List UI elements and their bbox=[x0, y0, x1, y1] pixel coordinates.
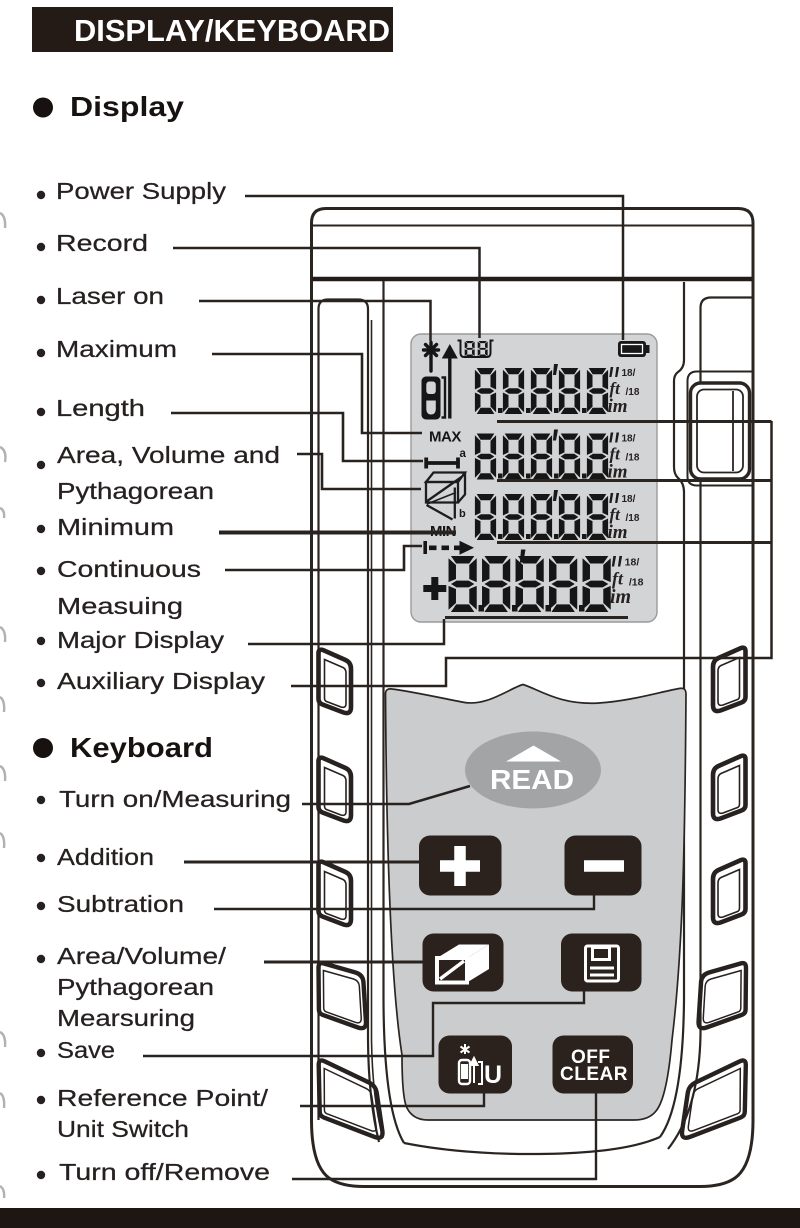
svg-text:a: a bbox=[460, 448, 467, 460]
svg-text:MAX: MAX bbox=[429, 429, 461, 446]
svg-text:Turn on/Measuring: Turn on/Measuring bbox=[59, 786, 291, 812]
svg-text:Measuing: Measuing bbox=[57, 593, 183, 619]
svg-text:Area, Volume and: Area, Volume and bbox=[57, 442, 280, 468]
svg-text:Length: Length bbox=[56, 395, 145, 421]
svg-text:Area/Volume/: Area/Volume/ bbox=[57, 943, 227, 969]
svg-text:Pythagorean: Pythagorean bbox=[57, 974, 214, 1000]
svg-text:Subtration: Subtration bbox=[57, 891, 184, 917]
svg-text:Keyboard: Keyboard bbox=[70, 732, 213, 763]
svg-text:Continuous: Continuous bbox=[57, 556, 201, 582]
svg-text:Major Display: Major Display bbox=[57, 627, 225, 653]
svg-text:READ: READ bbox=[490, 764, 574, 795]
svg-text:Turn off/Remove: Turn off/Remove bbox=[59, 1159, 270, 1185]
svg-text:Reference Point/: Reference Point/ bbox=[57, 1085, 269, 1111]
svg-text:U: U bbox=[484, 1061, 502, 1089]
svg-text:Minimum: Minimum bbox=[57, 514, 174, 540]
svg-text:Mearsuring: Mearsuring bbox=[57, 1005, 195, 1031]
svg-text:b: b bbox=[459, 508, 466, 520]
svg-text:Power Supply: Power Supply bbox=[56, 178, 227, 204]
svg-text:DISPLAY/KEYBOARD: DISPLAY/KEYBOARD bbox=[74, 14, 390, 48]
svg-text:Pythagorean: Pythagorean bbox=[57, 478, 214, 504]
svg-text:Auxiliary Display: Auxiliary Display bbox=[57, 668, 266, 694]
svg-text:Laser on: Laser on bbox=[56, 283, 164, 309]
svg-text:Addition: Addition bbox=[57, 844, 154, 870]
svg-text:Display: Display bbox=[70, 91, 184, 122]
svg-text:Maximum: Maximum bbox=[56, 336, 177, 362]
svg-text:Unit Switch: Unit Switch bbox=[57, 1116, 189, 1142]
svg-text:Record: Record bbox=[56, 230, 148, 256]
svg-text:Save: Save bbox=[57, 1037, 115, 1063]
svg-text:CLEAR: CLEAR bbox=[560, 1064, 628, 1085]
